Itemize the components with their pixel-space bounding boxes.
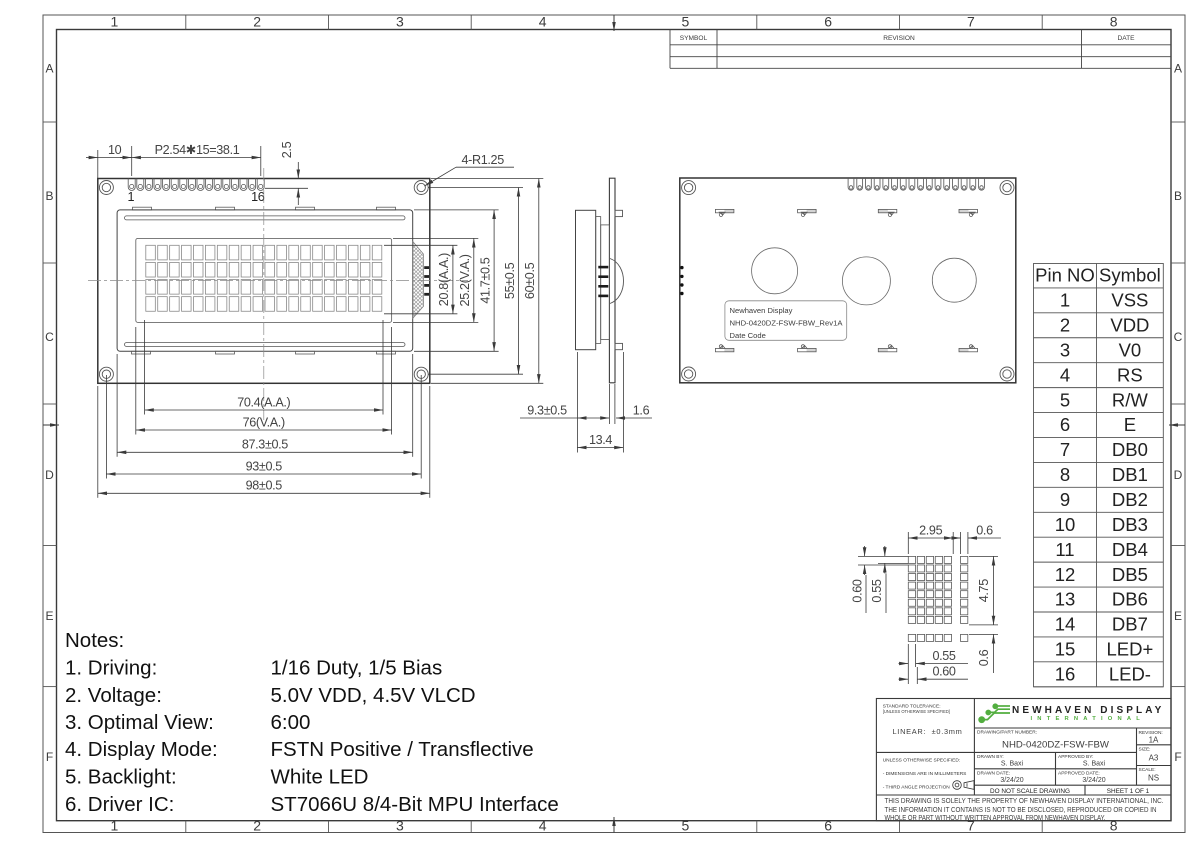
svg-text:3. Optimal View:: 3. Optimal View: <box>65 711 214 734</box>
svg-text:SIZE:: SIZE: <box>1139 747 1151 753</box>
svg-text:DB2: DB2 <box>1112 489 1148 510</box>
svg-text:2. Voltage:: 2. Voltage: <box>65 684 162 707</box>
svg-text:ST7066U 8/4-Bit MPU Interface: ST7066U 8/4-Bit MPU Interface <box>271 793 559 816</box>
svg-text:41.7±0.5: 41.7±0.5 <box>478 257 492 303</box>
svg-text:20.8(A.A.): 20.8(A.A.) <box>437 253 451 306</box>
svg-text:RS: RS <box>1117 364 1143 385</box>
svg-text:A: A <box>45 62 53 76</box>
svg-text:2.95: 2.95 <box>919 524 942 538</box>
svg-text:- THIRD ANGLE PROJECTION: - THIRD ANGLE PROJECTION <box>883 785 951 791</box>
svg-text:DB0: DB0 <box>1112 439 1148 460</box>
svg-text:3: 3 <box>1060 339 1070 360</box>
svg-text:LED+: LED+ <box>1107 639 1154 660</box>
svg-text:0.6: 0.6 <box>977 649 991 666</box>
svg-text:- DIMENSIONS ARE IN MILLIMETER: - DIMENSIONS ARE IN MILLIMETERS <box>883 771 967 777</box>
svg-text:98±0.5: 98±0.5 <box>246 479 283 493</box>
svg-text:6. Driver IC:: 6. Driver IC: <box>65 793 174 816</box>
svg-text:WHOLE OR PART WITHOUT WRITTEN: WHOLE OR PART WITHOUT WRITTEN APPROVAL F… <box>885 813 1106 822</box>
svg-text:9.3±0.5: 9.3±0.5 <box>527 404 567 418</box>
svg-text:DB5: DB5 <box>1112 564 1148 585</box>
svg-text:0.55: 0.55 <box>932 649 955 663</box>
svg-text:SCALE:: SCALE: <box>1139 767 1156 773</box>
svg-text:D: D <box>1174 468 1183 482</box>
svg-text:1: 1 <box>1060 290 1070 311</box>
svg-text:DATE: DATE <box>1117 35 1135 42</box>
svg-text:V0: V0 <box>1119 339 1142 360</box>
svg-text:White LED: White LED <box>271 766 369 789</box>
svg-text:DB4: DB4 <box>1112 539 1148 560</box>
svg-text:DRAWN DATE:: DRAWN DATE: <box>977 770 1010 776</box>
svg-text:1: 1 <box>111 14 119 30</box>
svg-text:10: 10 <box>1055 514 1076 535</box>
svg-text:P2.54✱15=38.1: P2.54✱15=38.1 <box>155 143 240 157</box>
svg-text:70.4(A.A.): 70.4(A.A.) <box>237 395 290 409</box>
svg-text:6: 6 <box>1060 414 1070 435</box>
svg-text:4.75: 4.75 <box>977 579 991 602</box>
svg-text:INTERNATIONAL: INTERNATIONAL <box>1031 716 1146 722</box>
svg-text:Symbol: Symbol <box>1099 265 1161 286</box>
svg-text:12: 12 <box>1055 564 1076 585</box>
svg-text:F: F <box>1174 750 1181 764</box>
svg-text:S. Baxi: S. Baxi <box>1001 761 1024 768</box>
svg-text:5: 5 <box>682 818 690 834</box>
svg-text:3/24/20: 3/24/20 <box>1000 777 1023 784</box>
svg-text:5: 5 <box>682 14 690 30</box>
svg-text:6: 6 <box>824 14 832 30</box>
svg-text:DO NOT SCALE DRAWING: DO NOT SCALE DRAWING <box>990 788 1070 795</box>
svg-text:16: 16 <box>251 190 265 204</box>
svg-text:76(V.A.): 76(V.A.) <box>243 415 285 429</box>
svg-text:13.4: 13.4 <box>589 433 612 447</box>
svg-text:1/16 Duty, 1/5 Bias: 1/16 Duty, 1/5 Bias <box>271 657 443 680</box>
svg-text:S. Baxi: S. Baxi <box>1083 761 1106 768</box>
svg-text:LINEAR: ±0.3mm: LINEAR: ±0.3mm <box>893 727 963 736</box>
svg-text:F: F <box>46 750 53 764</box>
svg-text:VSS: VSS <box>1111 290 1148 311</box>
svg-text:8: 8 <box>1110 818 1118 834</box>
svg-text:2.5: 2.5 <box>280 141 294 158</box>
svg-text:DB1: DB1 <box>1112 464 1148 485</box>
svg-text:4-R1.25: 4-R1.25 <box>462 153 505 167</box>
svg-text:SHEET 1 OF 1: SHEET 1 OF 1 <box>1107 788 1150 795</box>
svg-text:16: 16 <box>1055 664 1076 685</box>
svg-text:DB6: DB6 <box>1112 589 1148 610</box>
svg-text:B: B <box>45 189 53 203</box>
svg-text:3: 3 <box>396 818 404 834</box>
svg-text:5: 5 <box>1060 389 1070 410</box>
svg-text:8: 8 <box>1060 464 1070 485</box>
svg-text:8: 8 <box>1110 14 1118 30</box>
svg-text:5.0V VDD, 4.5V VLCD: 5.0V VDD, 4.5V VLCD <box>271 684 476 707</box>
svg-text:11: 11 <box>1055 539 1074 560</box>
svg-text:Notes:: Notes: <box>65 629 124 652</box>
svg-text:4: 4 <box>539 818 547 834</box>
svg-text:0.6: 0.6 <box>976 524 993 538</box>
svg-text:B: B <box>1174 189 1182 203</box>
svg-text:DRAWN BY:: DRAWN BY: <box>977 754 1004 760</box>
svg-text:10: 10 <box>108 143 122 157</box>
svg-text:60±0.5: 60±0.5 <box>523 262 537 299</box>
svg-text:7: 7 <box>1060 439 1070 460</box>
svg-text:55±0.5: 55±0.5 <box>503 262 517 299</box>
svg-text:Newhaven Display: Newhaven Display <box>730 306 793 315</box>
svg-text:NHD-0420DZ-FSW-FBW: NHD-0420DZ-FSW-FBW <box>1002 740 1110 751</box>
svg-text:6:00: 6:00 <box>271 711 311 734</box>
svg-text:15: 15 <box>1055 639 1076 660</box>
svg-text:1: 1 <box>111 818 119 834</box>
svg-text:13: 13 <box>1055 589 1076 610</box>
svg-text:3: 3 <box>396 14 404 30</box>
svg-text:2: 2 <box>253 14 261 30</box>
svg-text:A: A <box>1174 62 1182 76</box>
svg-text:1.6: 1.6 <box>633 404 650 418</box>
svg-text:LED-: LED- <box>1109 664 1151 685</box>
svg-text:4: 4 <box>539 14 547 30</box>
svg-text:1A: 1A <box>1149 736 1159 745</box>
svg-text:4: 4 <box>1060 364 1070 385</box>
svg-text:UNLESS OTHERWISE SPECIFIED:: UNLESS OTHERWISE SPECIFIED: <box>883 758 960 764</box>
svg-text:REVISION: REVISION <box>883 35 915 42</box>
svg-text:2: 2 <box>1060 315 1070 336</box>
svg-text:6: 6 <box>824 818 832 834</box>
svg-text:APPROVED BY:: APPROVED BY: <box>1058 754 1093 760</box>
svg-text:DB7: DB7 <box>1112 614 1148 635</box>
svg-text:[UNLESS OTHERWISE SPECIFIED]: [UNLESS OTHERWISE SPECIFIED] <box>883 709 950 714</box>
svg-text:87.3±0.5: 87.3±0.5 <box>242 438 288 452</box>
svg-text:14: 14 <box>1055 614 1076 635</box>
svg-text:2: 2 <box>253 818 261 834</box>
svg-text:NS: NS <box>1148 774 1159 783</box>
svg-text:VDD: VDD <box>1110 315 1149 336</box>
svg-text:SYMBOL: SYMBOL <box>680 35 708 42</box>
svg-text:R/W: R/W <box>1112 389 1149 410</box>
svg-text:C: C <box>1174 330 1183 344</box>
svg-text:1. Driving:: 1. Driving: <box>65 657 157 680</box>
svg-text:7: 7 <box>967 14 975 30</box>
svg-text:5. Backlight:: 5. Backlight: <box>65 766 177 789</box>
svg-text:E: E <box>1124 414 1136 435</box>
svg-text:0.60: 0.60 <box>932 664 955 678</box>
svg-text:4. Display Mode:: 4. Display Mode: <box>65 738 218 761</box>
svg-text:NHD-0420DZ-FSW-FBW_Rev1A: NHD-0420DZ-FSW-FBW_Rev1A <box>730 319 844 328</box>
svg-text:NEWHAVEN DISPLAY: NEWHAVEN DISPLAY <box>1012 705 1164 716</box>
svg-text:0.55: 0.55 <box>870 579 884 602</box>
svg-text:Pin NO: Pin NO <box>1035 265 1095 286</box>
svg-text:THIS DRAWING IS SOLELY THE PRO: THIS DRAWING IS SOLELY THE PROPERTY OF N… <box>885 796 1164 805</box>
svg-text:DB3: DB3 <box>1112 514 1148 535</box>
svg-text:FSTN Positive / Transflective: FSTN Positive / Transflective <box>271 738 534 761</box>
svg-text:25.2(V.A.): 25.2(V.A.) <box>458 254 472 306</box>
svg-text:9: 9 <box>1060 489 1070 510</box>
svg-text:3/24/20: 3/24/20 <box>1082 777 1105 784</box>
svg-text:Date Code: Date Code <box>730 331 766 340</box>
svg-text:0.60: 0.60 <box>851 579 865 602</box>
svg-text:1: 1 <box>127 190 134 204</box>
svg-text:APPROVED DATE:: APPROVED DATE: <box>1058 770 1100 776</box>
svg-text:93±0.5: 93±0.5 <box>246 459 283 473</box>
svg-text:E: E <box>45 609 53 623</box>
svg-text:E: E <box>1174 609 1182 623</box>
svg-text:A3: A3 <box>1149 754 1159 763</box>
svg-text:DRAWING/PART NUMBER:: DRAWING/PART NUMBER: <box>977 730 1037 736</box>
svg-text:D: D <box>45 468 54 482</box>
svg-text:C: C <box>45 330 54 344</box>
